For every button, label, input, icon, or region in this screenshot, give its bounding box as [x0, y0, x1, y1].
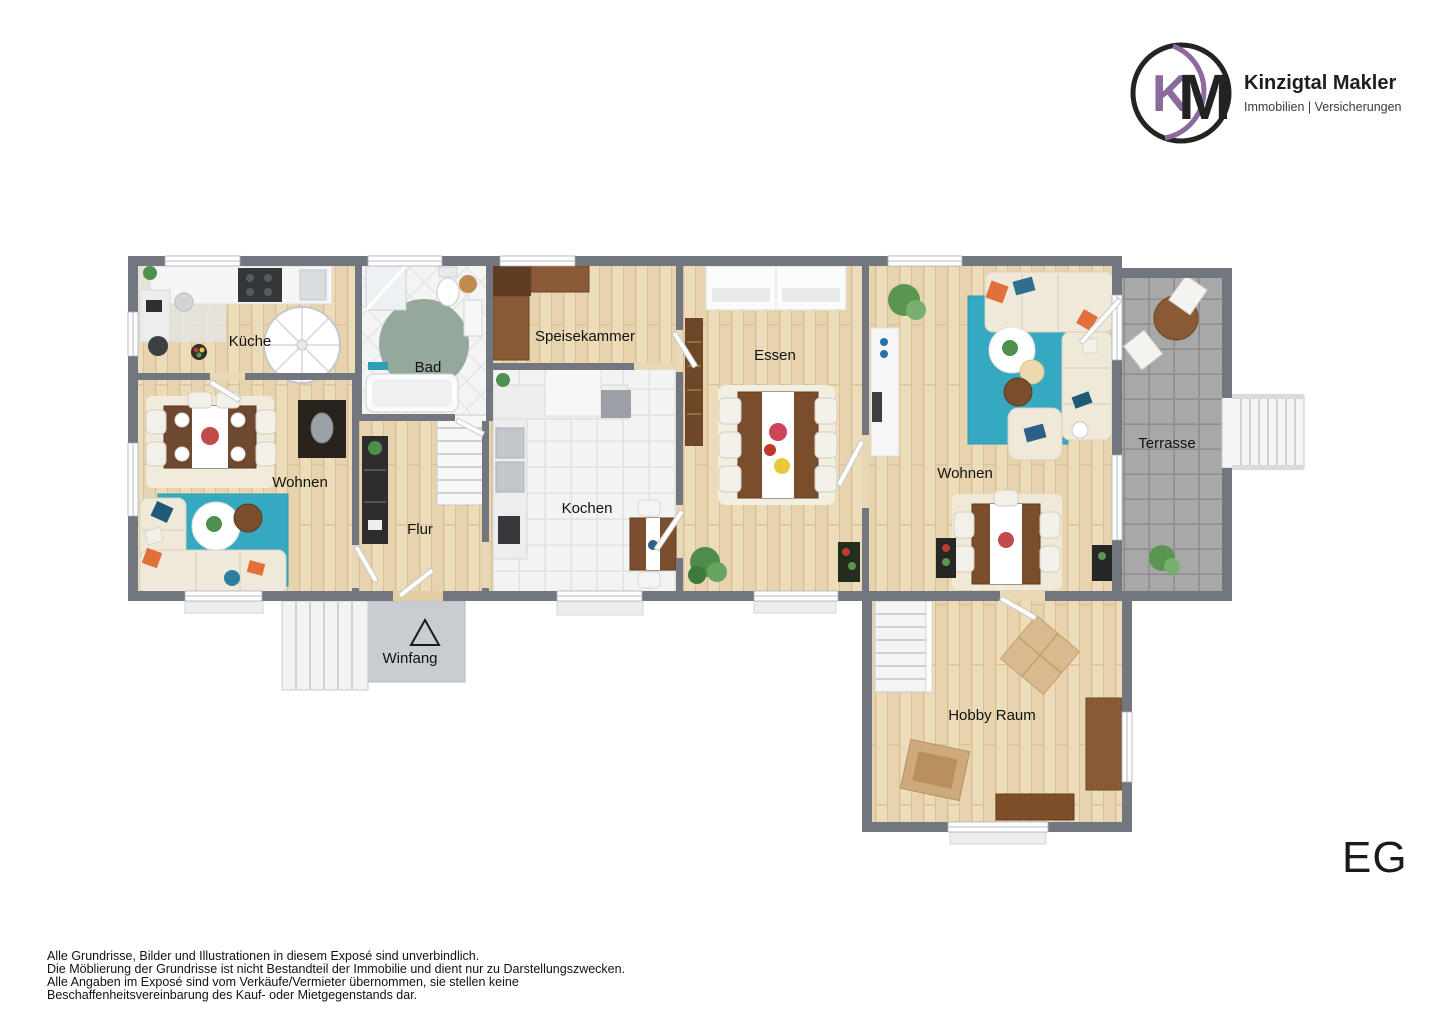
chair: [719, 466, 741, 492]
office-chair: [148, 336, 168, 356]
exterior-sill: [950, 832, 1046, 844]
window: [1122, 712, 1132, 782]
pantry-cabinet: [493, 266, 531, 296]
window: [128, 312, 138, 356]
wall-gap-floor: [210, 373, 245, 380]
floor-level-label: EG: [1342, 833, 1408, 883]
room-label-wohnen-rechts: Wohnen: [937, 465, 993, 482]
kitchen-desk: [140, 290, 170, 342]
chair: [815, 398, 837, 424]
bowl: [764, 444, 776, 456]
room-label-speisekammer: Speisekammer: [535, 328, 635, 345]
chair: [815, 466, 837, 492]
wall-gap-floor: [634, 363, 676, 370]
chair: [954, 546, 974, 572]
chair: [638, 572, 660, 588]
plant: [368, 441, 382, 455]
room-label-wohnen-links: Wohnen: [272, 474, 328, 491]
entry-stairs: [282, 601, 368, 690]
sofa: [140, 550, 286, 594]
appliance: [872, 392, 882, 422]
palm-plant: [707, 562, 727, 582]
herb-plant: [496, 373, 510, 387]
chair: [719, 398, 741, 424]
decor: [368, 520, 382, 530]
cook-stove: [496, 462, 524, 492]
chair: [1040, 512, 1060, 538]
bath-sink: [464, 300, 482, 336]
disclaimer: Alle Grundrisse, Bilder und Illustration…: [47, 950, 625, 1002]
bench: [996, 794, 1074, 820]
chair: [638, 500, 660, 516]
page: K M Kinzigtal Makler Immobilien | Versic…: [0, 0, 1440, 1017]
exterior-sill: [557, 601, 643, 615]
room-label-hobby: Hobby Raum: [948, 707, 1036, 724]
palm-plant: [688, 566, 706, 584]
plant: [906, 300, 926, 320]
planter: [838, 542, 860, 582]
fruit-bowl: [191, 344, 207, 360]
cook-sink: [496, 428, 524, 458]
pillow: [224, 570, 240, 586]
kitchen-sink: [300, 270, 326, 300]
chair: [815, 432, 837, 458]
plant: [143, 266, 157, 280]
exterior-sill: [754, 601, 836, 613]
coffee-machine: [498, 516, 520, 544]
flowers: [769, 423, 787, 441]
hall-stairs: [437, 415, 487, 505]
window: [128, 443, 138, 516]
desk-chair: [175, 293, 193, 311]
floor-lamp: [1072, 422, 1088, 438]
ottoman: [234, 504, 262, 532]
room-label-kochen: Kochen: [562, 500, 613, 517]
room-label-winfang: Winfang: [382, 650, 437, 667]
chair: [146, 410, 166, 434]
sculpture: [311, 413, 333, 443]
chair: [256, 410, 276, 434]
window: [368, 256, 442, 266]
chair: [719, 432, 741, 458]
chair: [256, 442, 276, 466]
chair: [954, 512, 974, 538]
flowers: [998, 532, 1014, 548]
floor-plan: Küche Bad Speisekammer: [0, 0, 1440, 1017]
cooktop: [238, 268, 282, 302]
room-label-essen: Essen: [754, 347, 796, 364]
exterior-sill: [185, 601, 263, 613]
sideboard-slats: [712, 288, 770, 302]
ottoman: [1004, 378, 1032, 406]
flowers: [201, 427, 219, 445]
chair: [1040, 546, 1060, 572]
laptop: [146, 300, 162, 312]
window: [185, 591, 262, 601]
window: [888, 256, 962, 266]
window: [500, 256, 575, 266]
plant: [1164, 558, 1180, 574]
window: [557, 591, 642, 601]
window: [754, 591, 838, 601]
window: [1112, 455, 1122, 540]
planter: [1092, 545, 1112, 581]
chair: [188, 392, 212, 408]
toilet-tank: [439, 267, 457, 277]
window: [165, 256, 240, 266]
room-label-kueche: Küche: [229, 333, 272, 350]
sideboard: [1086, 698, 1122, 790]
bathtub-inner: [372, 379, 452, 407]
wall-gap-floor: [482, 542, 489, 588]
toilet: [437, 278, 459, 306]
pantry-counter-top: [531, 266, 589, 292]
spiral-staircase: [264, 307, 340, 383]
cook-range: [601, 390, 631, 418]
plant: [1002, 340, 1018, 356]
shelf-unit: [685, 318, 703, 446]
bath-accessory: [368, 362, 388, 370]
chair: [146, 442, 166, 466]
plate: [774, 458, 790, 474]
room-label-flur: Flur: [407, 521, 433, 538]
plant: [206, 516, 222, 532]
window: [948, 822, 1048, 832]
pantry-counter: [493, 296, 529, 360]
room-label-terrasse: Terrasse: [1138, 435, 1196, 452]
chair: [994, 490, 1018, 506]
terrace-stairs: [1222, 394, 1304, 470]
disclaimer-line: Beschaffenheitsvereinbarung des Kauf- od…: [47, 989, 625, 1002]
hobby-stairs: [875, 601, 932, 692]
room-label-bad: Bad: [415, 359, 442, 376]
wood-stool: [459, 275, 477, 293]
sideboard-slats: [782, 288, 840, 302]
cook-cabinet: [545, 368, 601, 416]
